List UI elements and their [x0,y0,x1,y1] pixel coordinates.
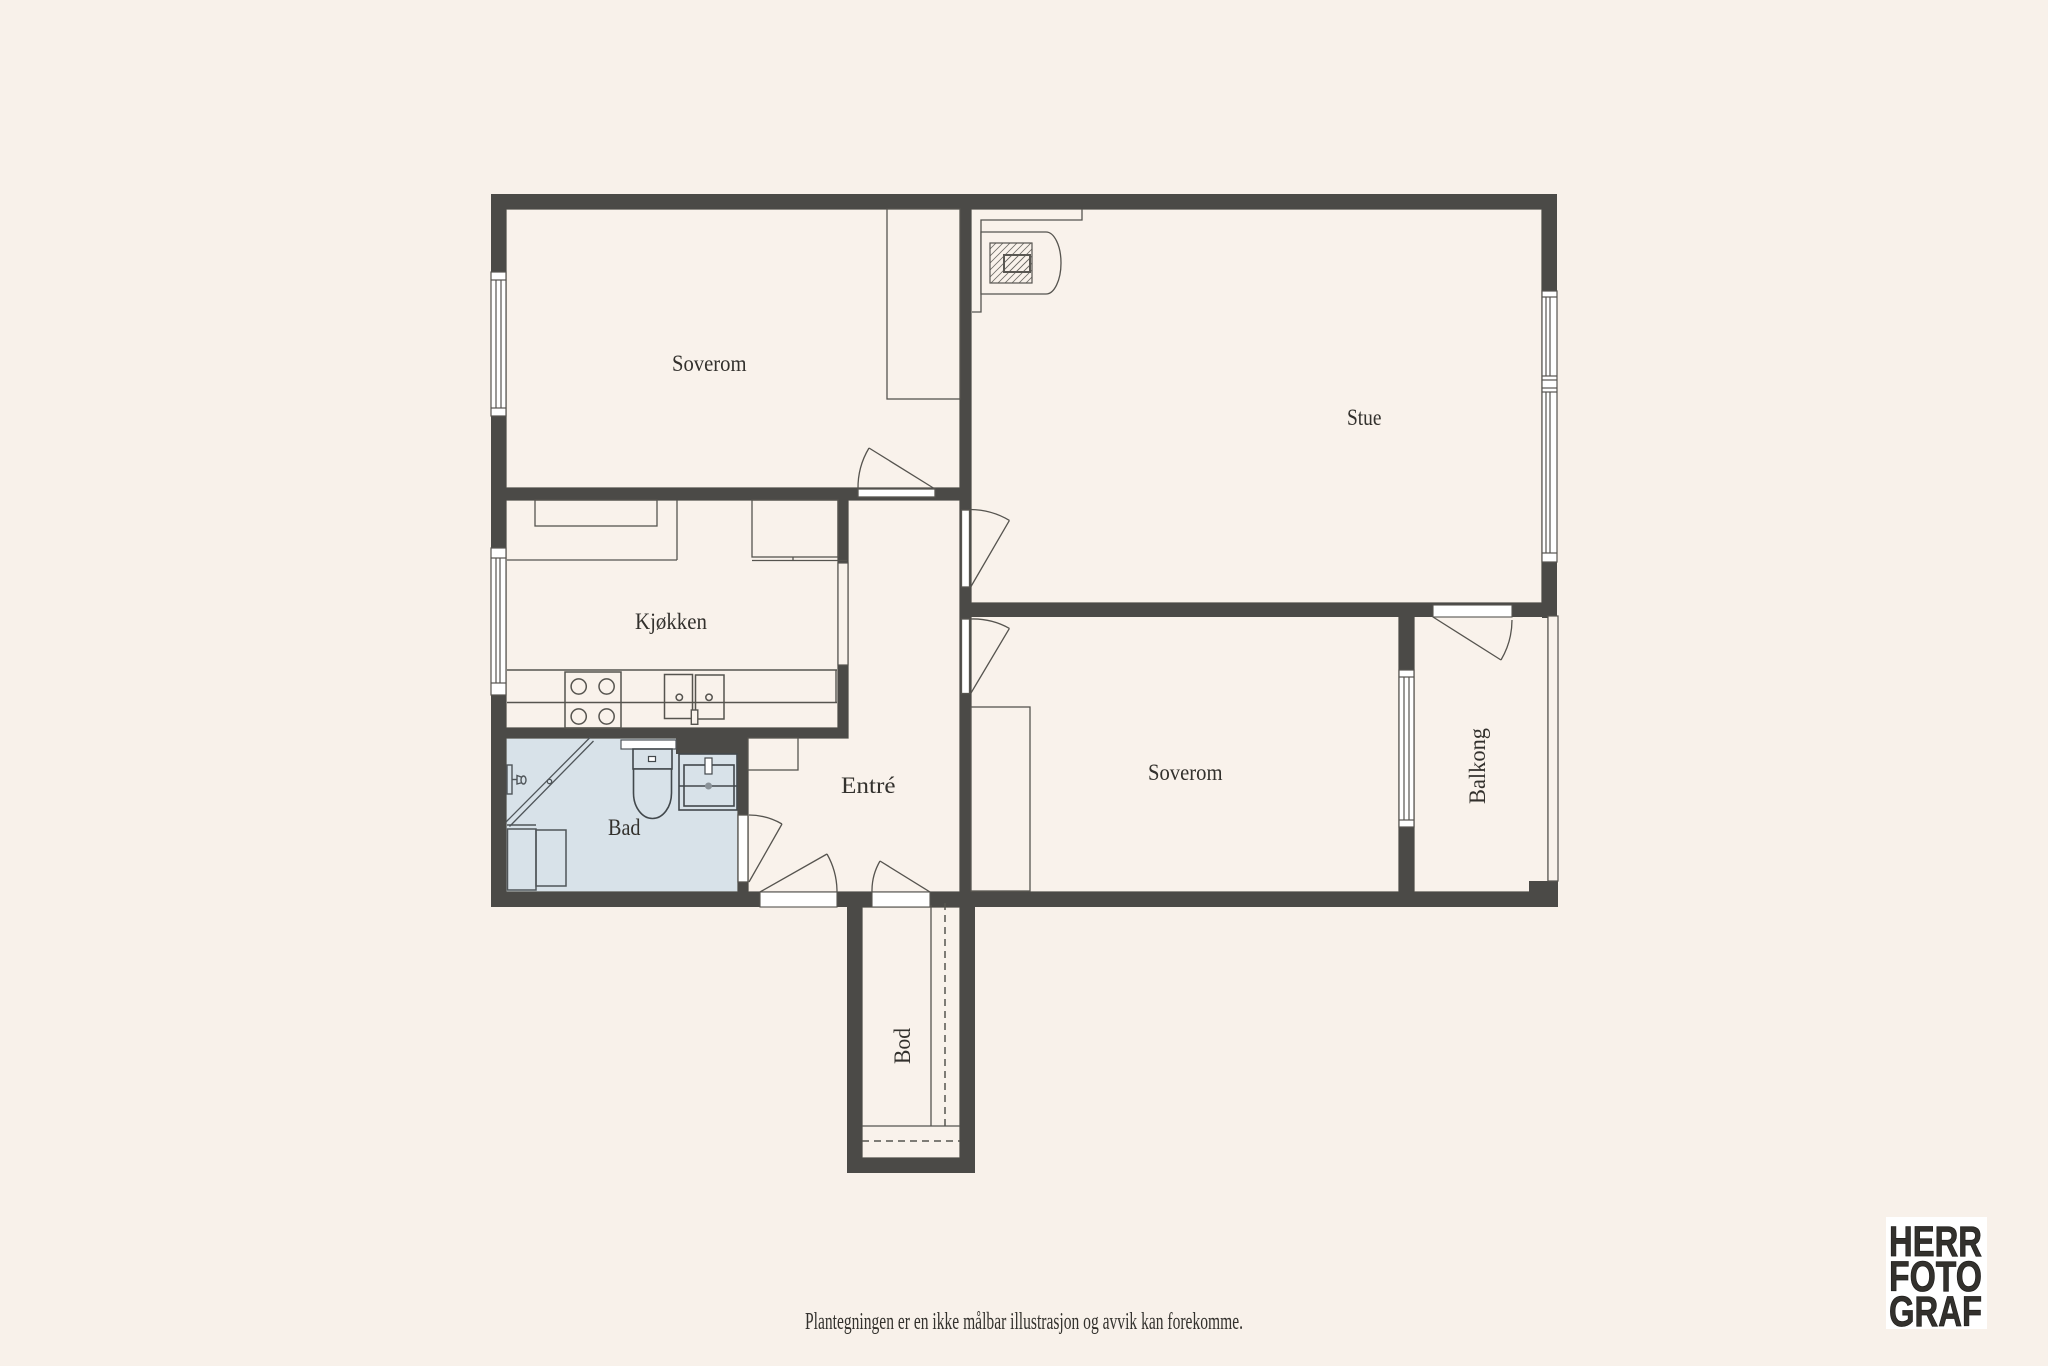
svg-text:Balkong: Balkong [1465,728,1490,804]
svg-text:Bod: Bod [890,1028,915,1064]
svg-text:Entré: Entré [841,773,896,798]
svg-text:Kjøkken: Kjøkken [635,609,707,634]
svg-text:Soverom: Soverom [1148,760,1223,785]
svg-text:Bad: Bad [608,815,641,840]
svg-text:Soverom: Soverom [672,351,747,376]
svg-text:GRAF: GRAF [1889,1288,1982,1336]
svg-text:Plantegningen er en ikke målba: Plantegningen er en ikke målbar illustra… [805,1309,1243,1335]
svg-text:Stue: Stue [1347,405,1382,430]
